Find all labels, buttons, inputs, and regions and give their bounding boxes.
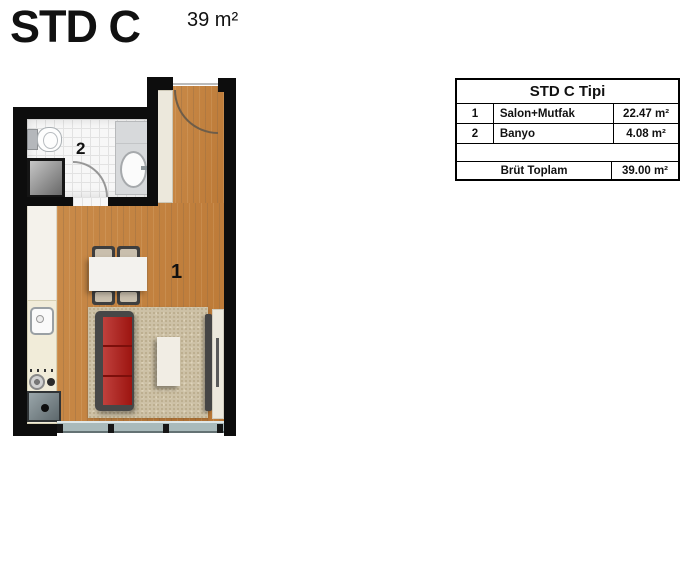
table-row: 2 Banyo 4.08 m² [457,124,678,144]
sofa-cushion [103,377,132,405]
basin-drain [41,404,49,412]
floorplan: 1 2 [0,0,260,460]
window-mullion [57,424,63,433]
sofa-cushion [103,317,132,345]
dining-chair [92,289,115,305]
sink-tap [36,315,44,323]
wall-bathroom-right [147,77,158,206]
window [57,421,224,433]
total-value: 39.00 m² [612,165,678,177]
row-number: 1 [457,104,494,123]
window-mullion [217,424,223,433]
wall-bathroom-bottom-left [13,197,73,206]
row-area: 4.08 m² [614,128,678,140]
toilet-bowl [37,127,62,152]
bathroom-vanity [115,121,148,195]
sofa-cushions [103,317,132,405]
wall-right [224,78,236,436]
area-table-header: STD C Tipi [457,80,678,104]
chair-seat [95,292,112,302]
stove-knobs [30,369,56,372]
row-area: 22.47 m² [614,108,678,120]
table-row: 1 Salon+Mutfak 22.47 m² [457,104,678,124]
sofa [95,311,134,411]
vanity-divider [116,143,147,144]
area-table: STD C Tipi 1 Salon+Mutfak 22.47 m² 2 Ban… [455,78,680,181]
row-name: Salon+Mutfak [494,104,614,123]
room-label-living: 1 [171,262,182,282]
table-spacer-row [457,144,678,162]
kitchen-tall-cabinet [27,203,57,301]
window-mullion [163,424,169,433]
kitchen-sink [30,307,54,335]
wall-bottom-right [224,424,236,436]
wall-bathroom-top [13,107,157,119]
row-number: 2 [457,124,494,143]
table-total-row: Brüt Toplam 39.00 m² [457,162,678,179]
stove-burner-large [29,374,45,390]
wall-left [13,107,27,436]
entry-closet [157,90,173,203]
bathroom-door-gap [73,197,108,206]
tv-cabinet-handle [216,338,219,387]
dining-table [89,257,147,291]
floorplan-page: STD C 39 m² [0,0,700,570]
entry-door-threshold [173,83,218,85]
window-mullion [108,424,114,433]
row-name: Banyo [494,124,614,143]
tv-cabinet [212,309,224,419]
kitchen-basin [27,391,61,422]
coffee-table [157,337,180,386]
sofa-cushion [103,347,132,375]
toilet-bowl-inner [43,132,58,149]
stove-burner-small [47,378,55,386]
wall-bathroom-bottom-right [108,197,158,206]
total-label: Brüt Toplam [457,162,612,179]
tv [205,314,212,411]
chair-seat [120,292,137,302]
dining-chair [117,289,140,305]
room-label-bath: 2 [76,140,85,157]
wall-bottom-left [13,424,57,436]
area-table-title: STD C Tipi [530,83,606,100]
shower [27,158,65,198]
